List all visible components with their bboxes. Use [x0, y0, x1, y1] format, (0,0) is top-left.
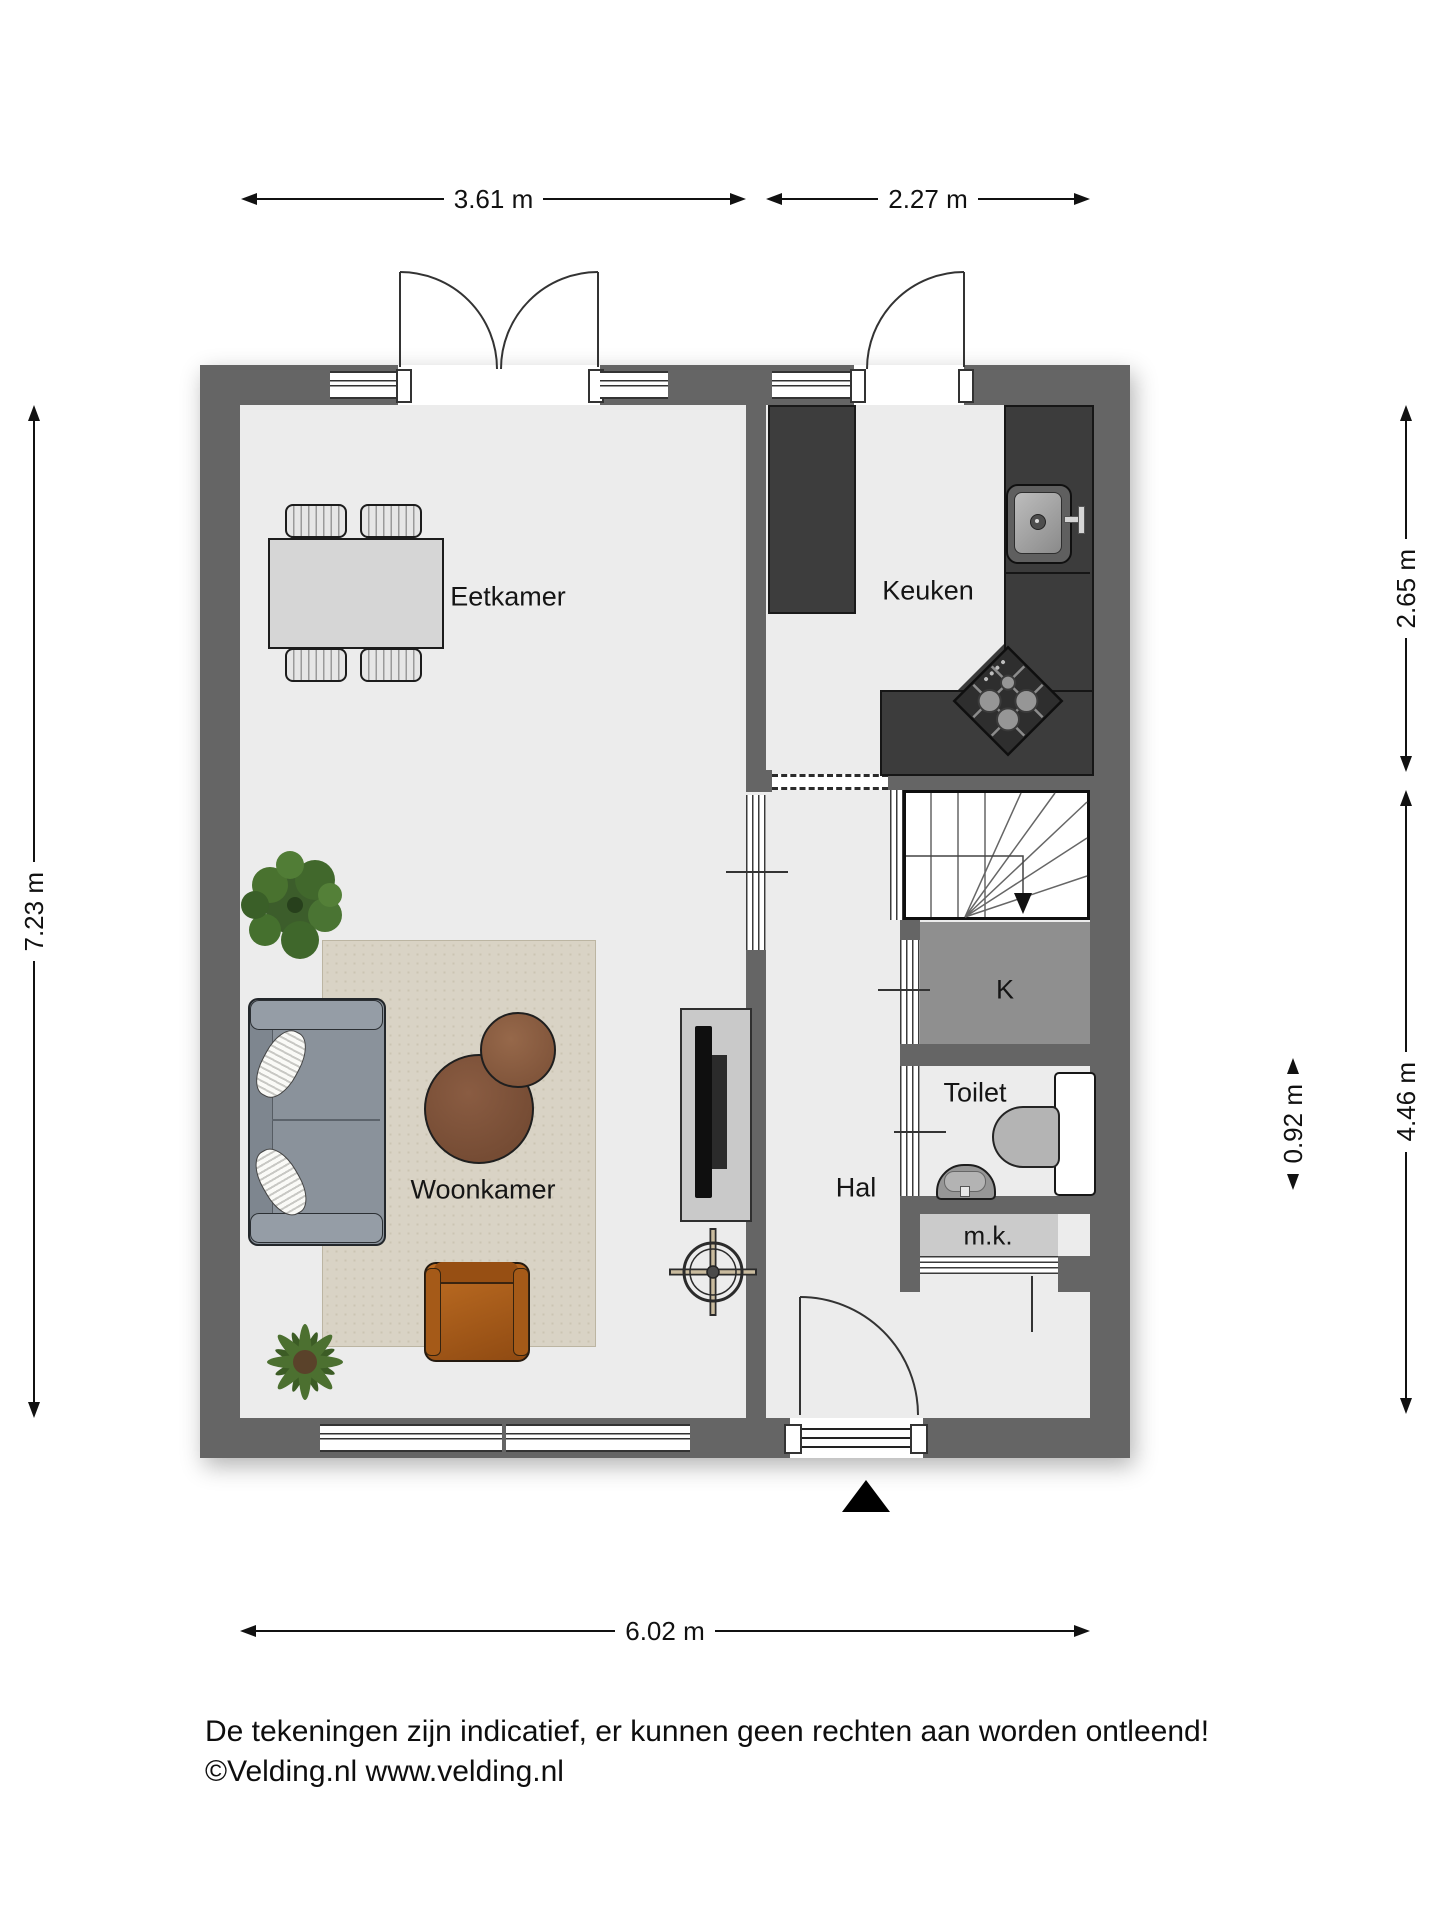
line-overlay: [0, 0, 1440, 1920]
door-swing: [501, 272, 598, 369]
disclaimer-line: De tekeningen zijn indicatief, er kunnen…: [205, 1712, 1209, 1752]
door-swing: [400, 272, 497, 369]
front-door-swing: [800, 1297, 918, 1415]
copyright-line: ©Velding.nl www.velding.nl: [205, 1752, 1209, 1792]
room-label-kast: K: [996, 975, 1014, 1006]
door-swing: [867, 272, 964, 369]
room-label-eetkamer: Eetkamer: [450, 582, 566, 613]
floorplan-page: 3.61 m 2.27 m 6.02 m 7.23 m 2.65 m 4.46 …: [0, 0, 1440, 1920]
room-label-hal: Hal: [836, 1173, 877, 1204]
room-label-meterkast: m.k.: [963, 1221, 1012, 1252]
north-arrow-icon: [842, 1480, 890, 1512]
room-label-keuken: Keuken: [882, 576, 974, 607]
room-label-woonkamer: Woonkamer: [410, 1175, 555, 1206]
room-label-toilet: Toilet: [943, 1078, 1006, 1109]
footer-disclaimer: De tekeningen zijn indicatief, er kunnen…: [205, 1712, 1209, 1792]
